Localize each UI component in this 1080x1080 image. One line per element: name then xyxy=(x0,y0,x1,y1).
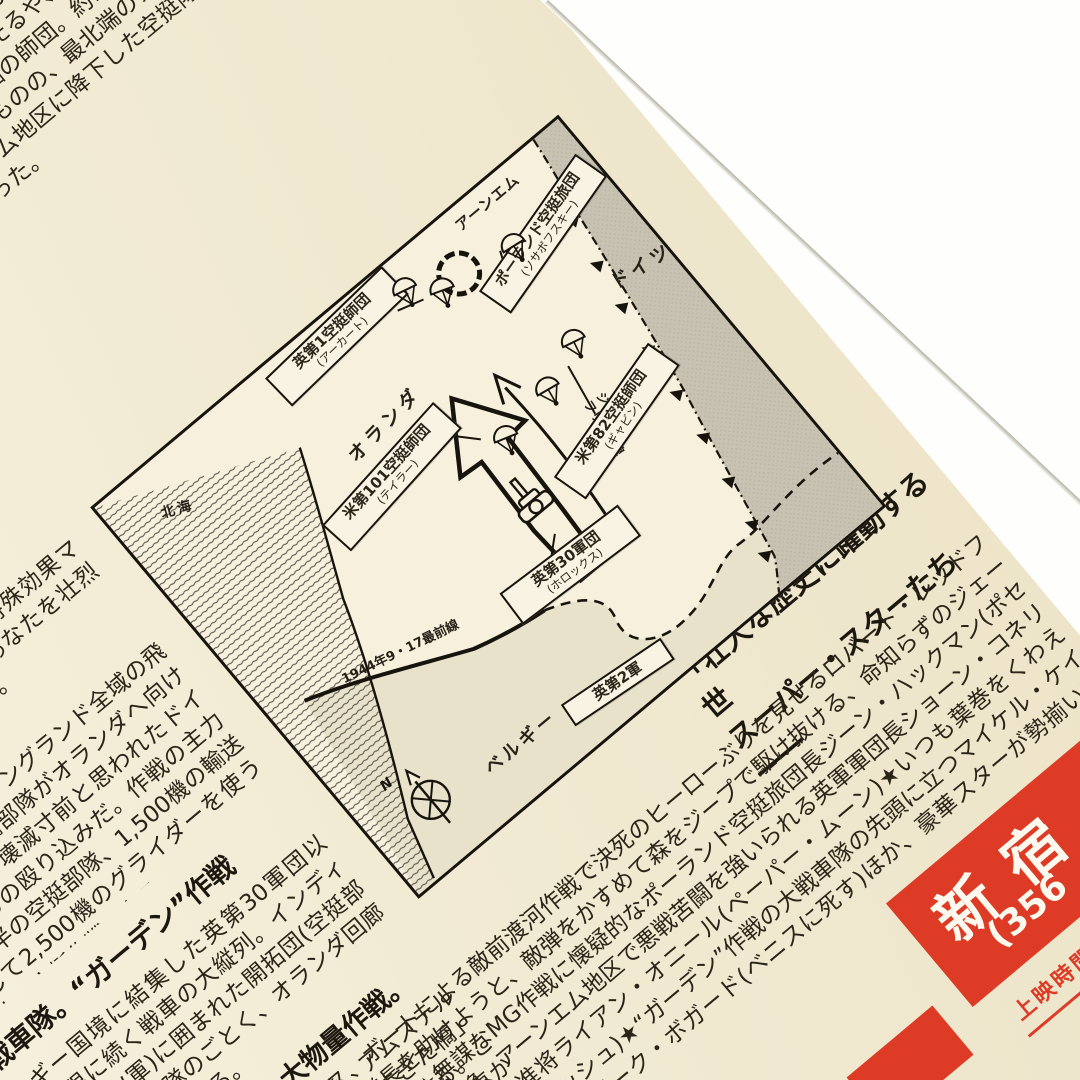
photo-of-newspaper-page: 1977年度、世界の話題を独占する超大作が、いよいよ日本に登場する。製作費2,6… xyxy=(0,0,1080,1080)
second-theater-banner xyxy=(847,1006,974,1080)
siegfried-tooth xyxy=(615,297,633,315)
